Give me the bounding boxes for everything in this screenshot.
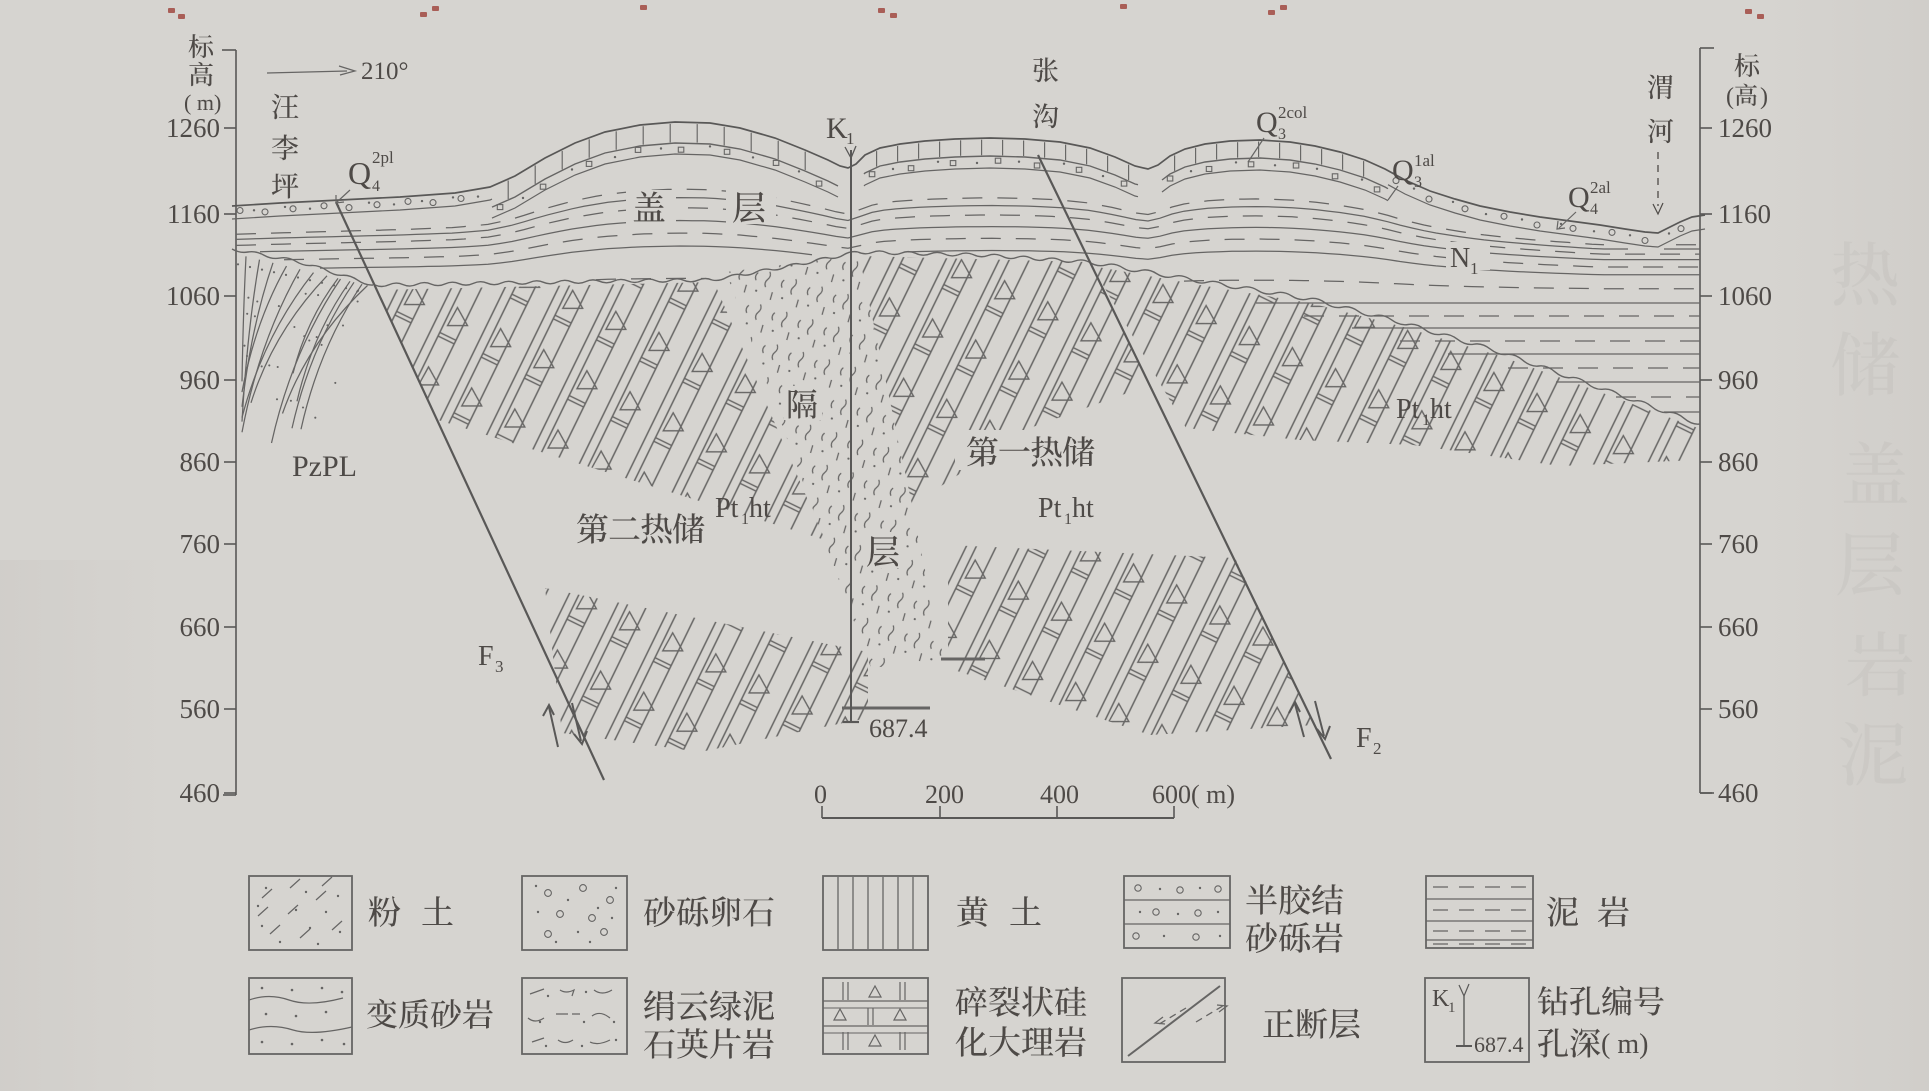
svg-text:4: 4 xyxy=(1590,201,1598,218)
svg-text:860: 860 xyxy=(1718,447,1759,477)
svg-text:460: 460 xyxy=(1718,778,1759,808)
svg-text:200: 200 xyxy=(925,780,964,809)
svg-text:1al: 1al xyxy=(1414,151,1435,170)
svg-text:1160: 1160 xyxy=(167,199,220,229)
svg-text:1060: 1060 xyxy=(1718,281,1772,311)
svg-text:3: 3 xyxy=(495,657,504,676)
svg-text:1: 1 xyxy=(1470,259,1479,278)
svg-text:ht: ht xyxy=(1072,493,1094,524)
svg-text:3: 3 xyxy=(1414,174,1422,191)
svg-text:F: F xyxy=(1356,723,1372,754)
svg-text:ht: ht xyxy=(1430,394,1452,425)
svg-text:1260: 1260 xyxy=(166,113,220,143)
svg-text:560: 560 xyxy=(180,694,221,724)
svg-text:3: 3 xyxy=(1278,126,1286,143)
svg-text:1260: 1260 xyxy=(1718,113,1772,143)
svg-text:687.4: 687.4 xyxy=(1474,1032,1524,1057)
svg-text:Pt: Pt xyxy=(715,493,739,524)
svg-text:2pl: 2pl xyxy=(372,148,394,167)
svg-text:Q: Q xyxy=(1568,181,1590,214)
svg-text:1160: 1160 xyxy=(1718,199,1771,229)
svg-text:1: 1 xyxy=(1422,412,1430,429)
svg-text:F: F xyxy=(478,641,494,672)
svg-text:PzPL: PzPL xyxy=(292,450,357,483)
svg-text:( m): ( m) xyxy=(184,90,221,115)
svg-text:660: 660 xyxy=(180,612,221,642)
svg-text:1: 1 xyxy=(846,129,855,148)
svg-text:687.4: 687.4 xyxy=(869,714,928,743)
svg-text:( m): ( m) xyxy=(1601,1029,1648,1060)
svg-text:760: 760 xyxy=(1718,529,1759,559)
svg-text:N: N xyxy=(1450,243,1470,274)
svg-text:2col: 2col xyxy=(1278,103,1308,122)
svg-text:860: 860 xyxy=(180,447,221,477)
svg-text:2al: 2al xyxy=(1590,178,1611,197)
svg-text:460: 460 xyxy=(180,778,221,808)
svg-text:210°: 210° xyxy=(361,58,409,85)
svg-text:660: 660 xyxy=(1718,612,1759,642)
svg-text:4: 4 xyxy=(372,178,380,195)
svg-text:Pt: Pt xyxy=(1396,394,1420,425)
svg-text:600( m): 600( m) xyxy=(1152,780,1235,809)
svg-text:1: 1 xyxy=(1064,511,1072,528)
svg-text:560: 560 xyxy=(1718,694,1759,724)
svg-text:400: 400 xyxy=(1040,780,1079,809)
svg-text:0: 0 xyxy=(814,780,827,809)
svg-text:960: 960 xyxy=(180,365,221,395)
svg-text:Q: Q xyxy=(1392,154,1414,187)
svg-text:960: 960 xyxy=(1718,365,1759,395)
svg-text:2: 2 xyxy=(1373,739,1382,758)
svg-text:Q: Q xyxy=(1256,106,1278,139)
svg-text:760: 760 xyxy=(180,529,221,559)
svg-text:1: 1 xyxy=(741,511,749,528)
svg-text:1: 1 xyxy=(1448,1000,1456,1016)
svg-text:K: K xyxy=(826,112,848,145)
svg-text:): ) xyxy=(1760,84,1768,110)
svg-text:ht: ht xyxy=(749,493,771,524)
svg-text:Q: Q xyxy=(348,155,371,191)
svg-text:1060: 1060 xyxy=(166,281,220,311)
svg-text:(: ( xyxy=(1726,84,1734,110)
svg-text:Pt: Pt xyxy=(1038,493,1062,524)
